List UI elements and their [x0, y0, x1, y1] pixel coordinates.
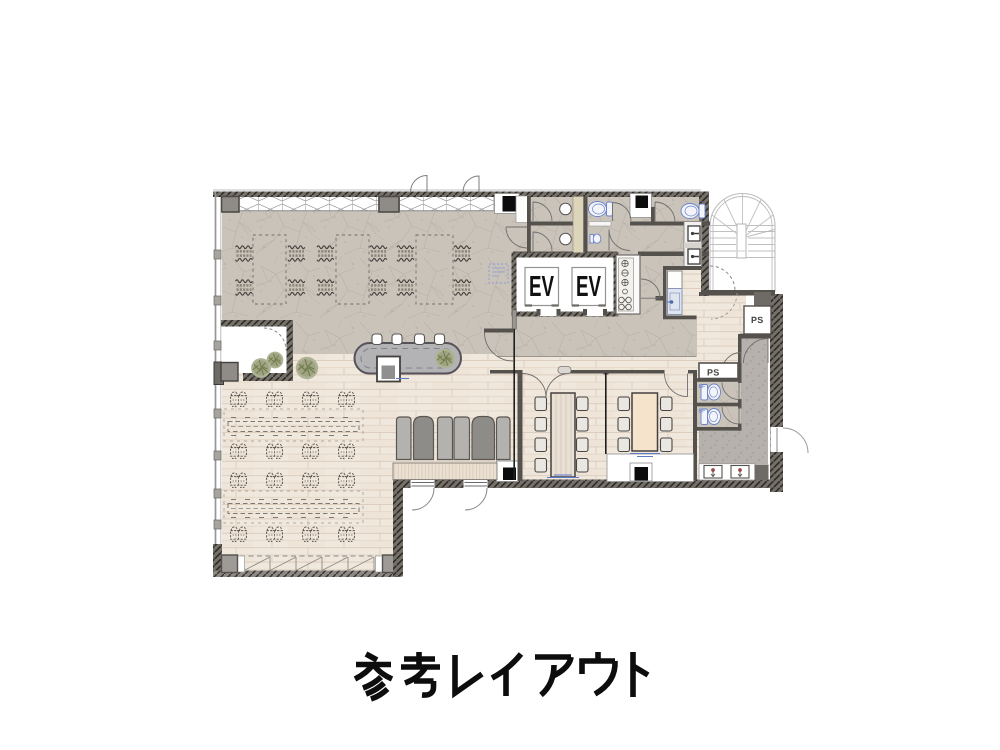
- svg-text:BF: BF: [699, 409, 707, 415]
- svg-text:BF: BF: [699, 384, 707, 390]
- svg-text:EV: EV: [529, 271, 554, 303]
- svg-text:PS: PS: [707, 368, 720, 378]
- svg-text:EV: EV: [576, 271, 601, 303]
- svg-text:PS: PS: [751, 315, 764, 325]
